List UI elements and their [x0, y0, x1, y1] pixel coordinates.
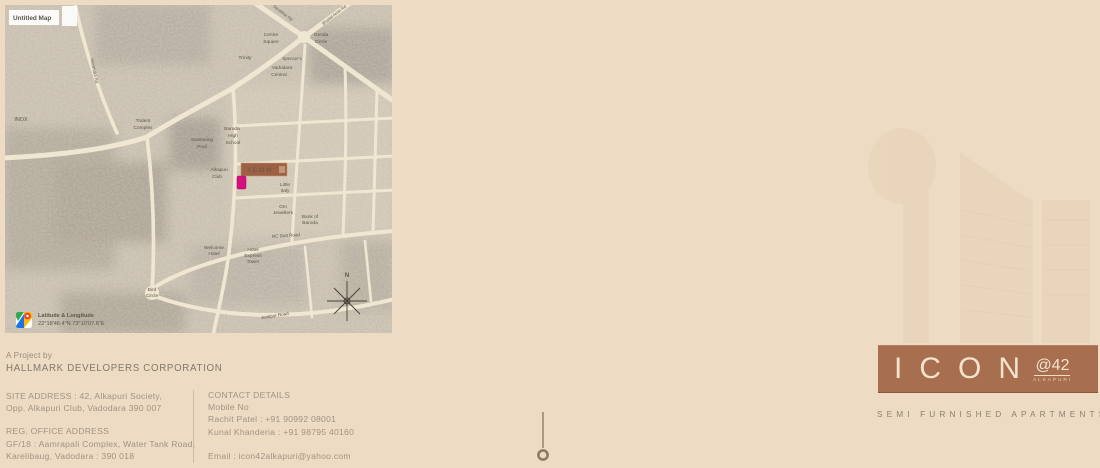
map-label: School [226, 140, 241, 146]
map-pin-marker [237, 176, 246, 189]
latitude-longitude-title: Latitude & Longitude [38, 313, 94, 319]
developer-name: HALLMARK DEVELOPERS CORPORATION [6, 363, 222, 374]
logo-wordmark: ICON [894, 354, 1037, 384]
map-label: Bird [148, 287, 157, 293]
untitled-map-label: Untitled Map [13, 15, 51, 22]
pull-string-ornament [528, 410, 558, 468]
map-label: Pool [197, 144, 207, 150]
map-label: Jewellers [273, 210, 294, 216]
latitude-longitude-value: 22°18'46.4"N 73°10'07.6"E [38, 321, 105, 327]
contact-line: Kunal Khanderia : +91 98795 40160 [208, 426, 354, 438]
map-label: Central [271, 72, 286, 78]
map-label: Alkapuri [210, 167, 227, 173]
reg-office-block: REG. OFFICE ADDRESSGF/18 : Aamrapali Com… [6, 425, 195, 462]
map-label: Om [279, 204, 287, 210]
map-label: Centre [264, 32, 279, 38]
column-divider [193, 390, 194, 463]
contact-details-block: CONTACT DETAILSMobile NoRachit Patel : +… [208, 389, 354, 438]
map-label: Welcome [204, 245, 224, 251]
site-marker-text: ICON [248, 168, 273, 174]
map-label: Swimming [191, 137, 213, 143]
google-maps-icon [16, 312, 32, 328]
contact-line: Rachit Patel : +91 90992 08001 [208, 413, 354, 425]
map-label: INOX [14, 117, 28, 123]
logo-suffix: @42 ALKAPURI [1033, 358, 1072, 383]
site-address-line: Opp. Alkapuri Club, Vadodara 390 007 [6, 402, 195, 414]
email-line: Email : icon42alkapuri@yahoo.com [208, 450, 354, 462]
map-label: Italy [281, 188, 290, 194]
site-address-line: SITE ADDRESS : 42, Alkapuri Society, [6, 390, 195, 402]
building-watermark [850, 60, 1100, 350]
map-label: High [228, 133, 238, 139]
map-label: Baroda [224, 126, 240, 132]
map-label: Complex [134, 125, 154, 131]
project-byline: A Project by HALLMARK DEVELOPERS CORPORA… [6, 351, 222, 374]
contact-column: CONTACT DETAILSMobile NoRachit Patel : +… [208, 389, 354, 462]
office-address-line: GF/18 : Aamrapali Complex, Water Tank Ro… [6, 438, 195, 450]
genda-circle-roundabout [298, 31, 310, 43]
map-label: Genda [314, 32, 329, 38]
map-label: Hotel [208, 251, 219, 257]
map-label: N [345, 273, 349, 279]
string-ring-icon [538, 450, 547, 459]
brochure-page: ICON Untitled Map [0, 0, 1100, 468]
logo-tagline: SEMI FURNISHED APARTMENTS [877, 409, 1100, 419]
map-label: Vadodara [272, 65, 293, 71]
map-label: Square [263, 39, 279, 45]
office-address-line: Karelibaug, Vadodara : 390 018 [6, 450, 195, 462]
map-label: Little [280, 182, 290, 188]
map-label: Hotel [247, 247, 258, 253]
map-label: Trinity [239, 55, 252, 61]
icon-logo: ICON @42 ALKAPURI [878, 345, 1098, 393]
logo-alkapuri: ALKAPURI [1033, 378, 1072, 383]
map-label: Tower [247, 259, 260, 265]
address-column: SITE ADDRESS : 42, Alkapuri Society,Opp.… [6, 390, 195, 462]
map-label: Bank of [302, 214, 319, 220]
map-image: ICON Untitled Map [5, 5, 392, 333]
logo-at42: @42 [1034, 358, 1070, 376]
map-ui-box [62, 6, 77, 26]
contact-line: Mobile No [208, 401, 354, 413]
map-label: Circle [146, 293, 159, 299]
map-label: Trident [136, 118, 151, 124]
project-prefix: A Project by [6, 351, 222, 360]
contact-line: CONTACT DETAILS [208, 389, 354, 401]
map-label: Club [212, 174, 222, 180]
site-marker-badge [279, 166, 285, 173]
location-map: ICON Untitled Map [5, 5, 392, 333]
site-address-block: SITE ADDRESS : 42, Alkapuri Society,Opp.… [6, 390, 195, 414]
map-label: Spencer's [282, 56, 302, 61]
map-label: Express [244, 253, 262, 259]
map-label: Baroda [302, 220, 318, 226]
map-label: Circle [315, 39, 328, 45]
office-address-line: REG. OFFICE ADDRESS [6, 425, 195, 437]
